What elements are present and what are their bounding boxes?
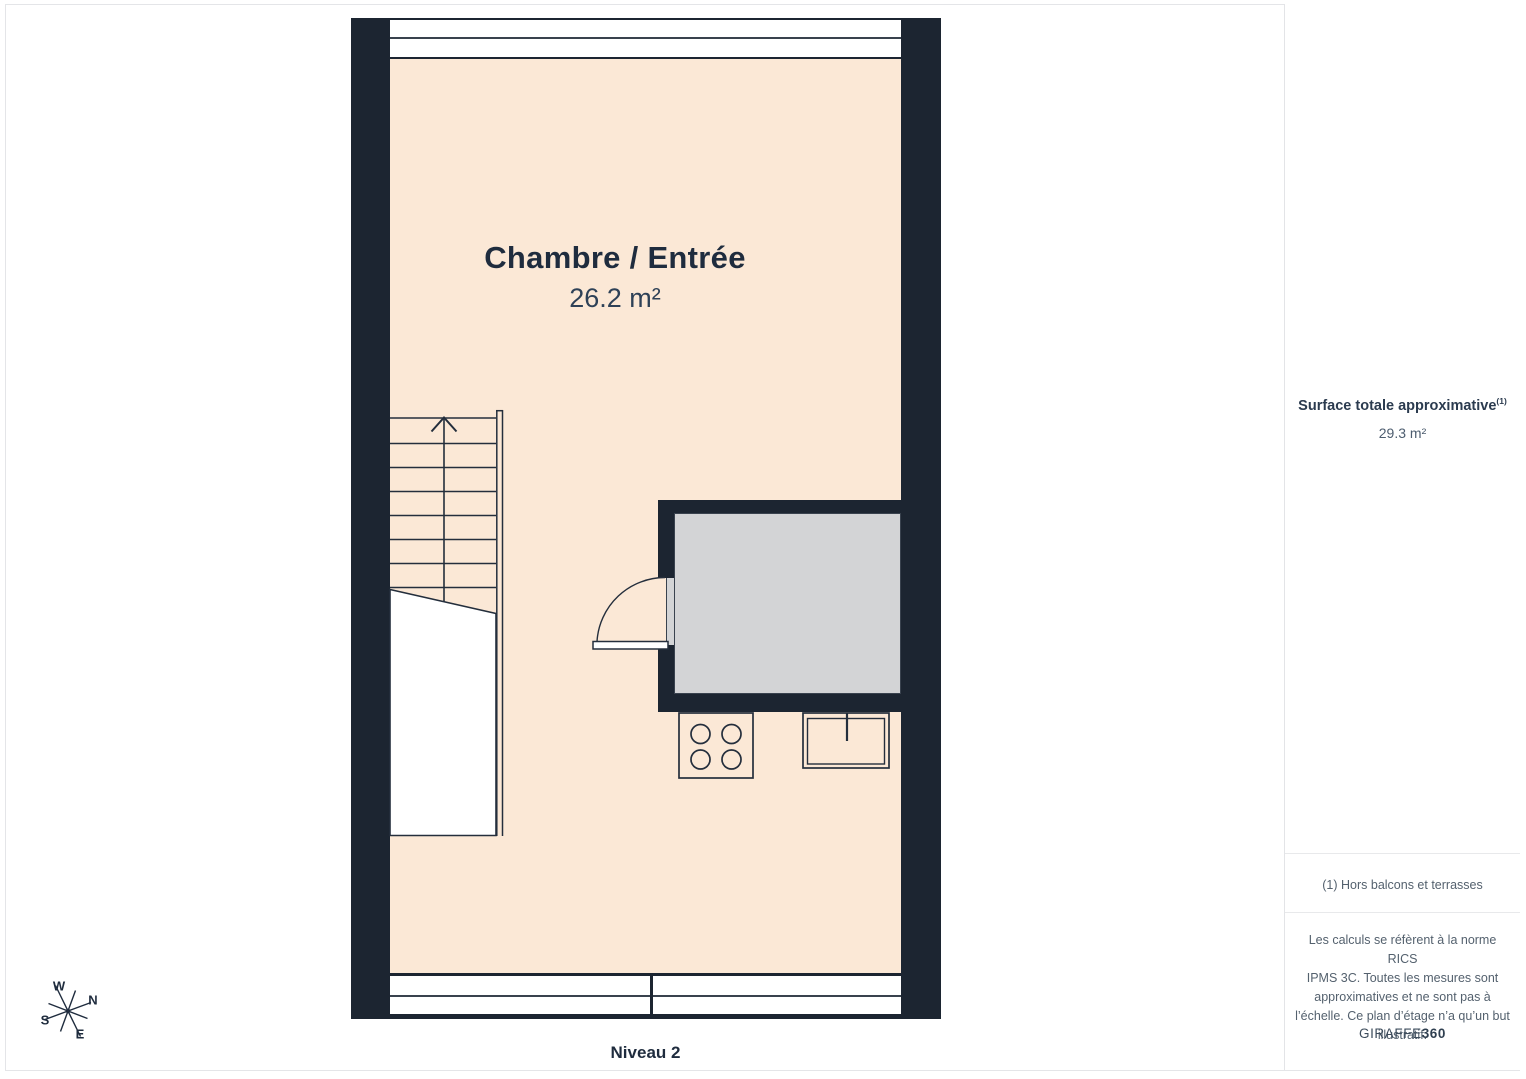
compass-label-north: N [88,993,97,1008]
surface-total-block: Surface totale approximative(1) 29.3 m² [1285,396,1520,441]
footnote: (1) Hors balcons et terrasses [1285,878,1520,892]
window-bottom [390,973,901,1019]
brand-suffix: 360 [1422,1026,1446,1041]
room-area: 26.2 m² [390,283,840,314]
window-top-glass-line [390,37,901,39]
surface-total-value: 29.3 m² [1285,425,1520,441]
window-top [390,18,901,59]
brand-name: GIRAFFE [1359,1026,1422,1041]
wall-left [351,18,390,1019]
sidebar-divider [1285,853,1520,854]
surface-total-title: Surface totale approximative(1) [1285,396,1520,414]
room-name: Chambre / Entrée [390,240,840,276]
floor-plan-page: W N S E Chambre / Entrée 26.2 m² Niveau … [0,0,1526,1079]
door-threshold [666,578,674,645]
surface-total-title-text: Surface totale approximative [1298,398,1496,414]
room-label-block: Chambre / Entrée 26.2 m² [390,240,840,314]
brand-logo: GIRAFFE360 [1285,1026,1520,1041]
sidebar: Surface totale approximative(1) 29.3 m² … [1284,4,1520,1070]
compass-label-east: E [76,1027,85,1042]
surface-total-footnote-marker: (1) [1496,396,1506,406]
window-bottom-mullion [650,976,653,1014]
wall-right [901,18,941,1019]
level-label: Niveau 2 [390,1043,901,1063]
wet-room-floor [674,513,901,694]
sidebar-divider [1285,912,1520,913]
compass-label-west: W [53,979,65,994]
door-opening [656,578,666,645]
window-bottom-glass-line [390,995,901,997]
compass-label-south: S [41,1013,50,1028]
